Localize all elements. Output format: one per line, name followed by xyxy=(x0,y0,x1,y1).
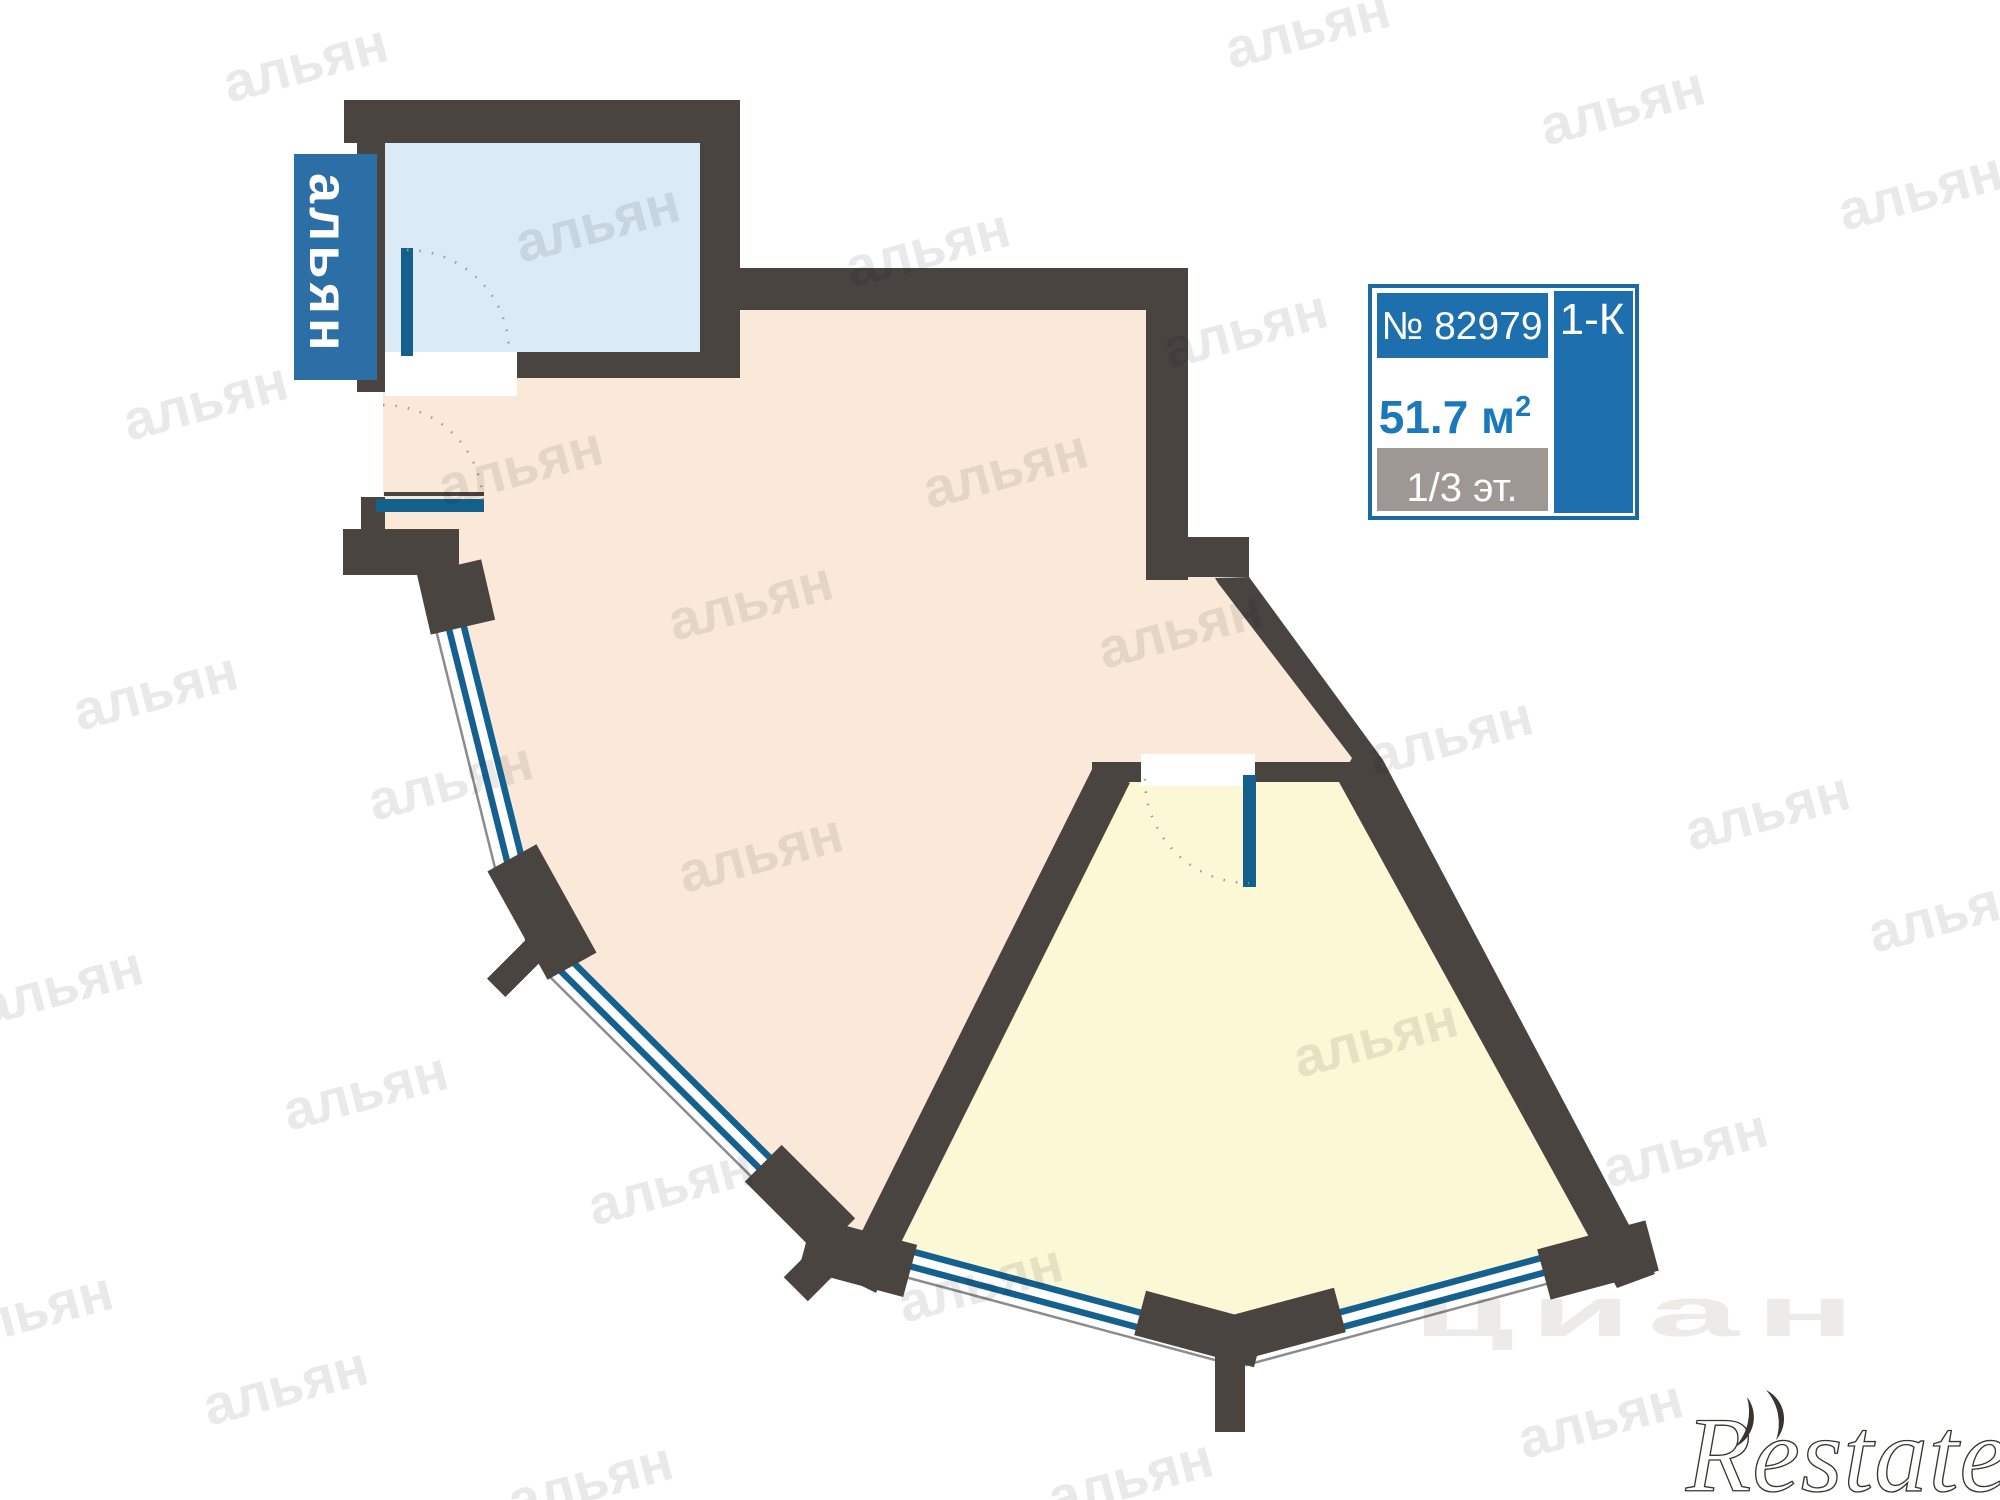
svg-text:альян: альян xyxy=(1596,1095,1774,1199)
svg-text:альян: альян xyxy=(66,638,244,742)
svg-text:альян: альян xyxy=(196,1333,374,1437)
svg-text:альян: альян xyxy=(581,1133,759,1237)
svg-text:альян: альян xyxy=(0,933,149,1037)
svg-text:циан: циан xyxy=(1413,1273,1872,1351)
svg-text:альян: альян xyxy=(216,10,394,114)
svg-text:альян: альян xyxy=(1533,53,1711,157)
svg-text:51.7 м2: 51.7 м2 xyxy=(1379,391,1531,443)
svg-text:альян: альян xyxy=(0,1258,119,1362)
svg-text:альян: альян xyxy=(1678,758,1856,862)
svg-text:альян: альян xyxy=(501,1428,679,1500)
svg-text:альян: альян xyxy=(1511,1366,1689,1470)
svg-text:альян: альян xyxy=(1831,138,2000,242)
svg-text:альян: альян xyxy=(116,348,294,452)
svg-text:1/3 эт.: 1/3 эт. xyxy=(1406,466,1517,510)
svg-text:Restate: Restate xyxy=(1685,1397,2000,1500)
svg-text:альян: альян xyxy=(276,1038,454,1142)
svg-text:№ 82979: № 82979 xyxy=(1381,305,1542,348)
svg-text:альян: альян xyxy=(1041,1425,1219,1500)
svg-text:1-К: 1-К xyxy=(1560,295,1625,344)
svg-text:альян: альян xyxy=(298,173,358,355)
svg-text:альян: альян xyxy=(1861,860,2000,964)
svg-text:альян: альян xyxy=(1218,0,1396,81)
svg-text:альян: альян xyxy=(1361,683,1539,787)
